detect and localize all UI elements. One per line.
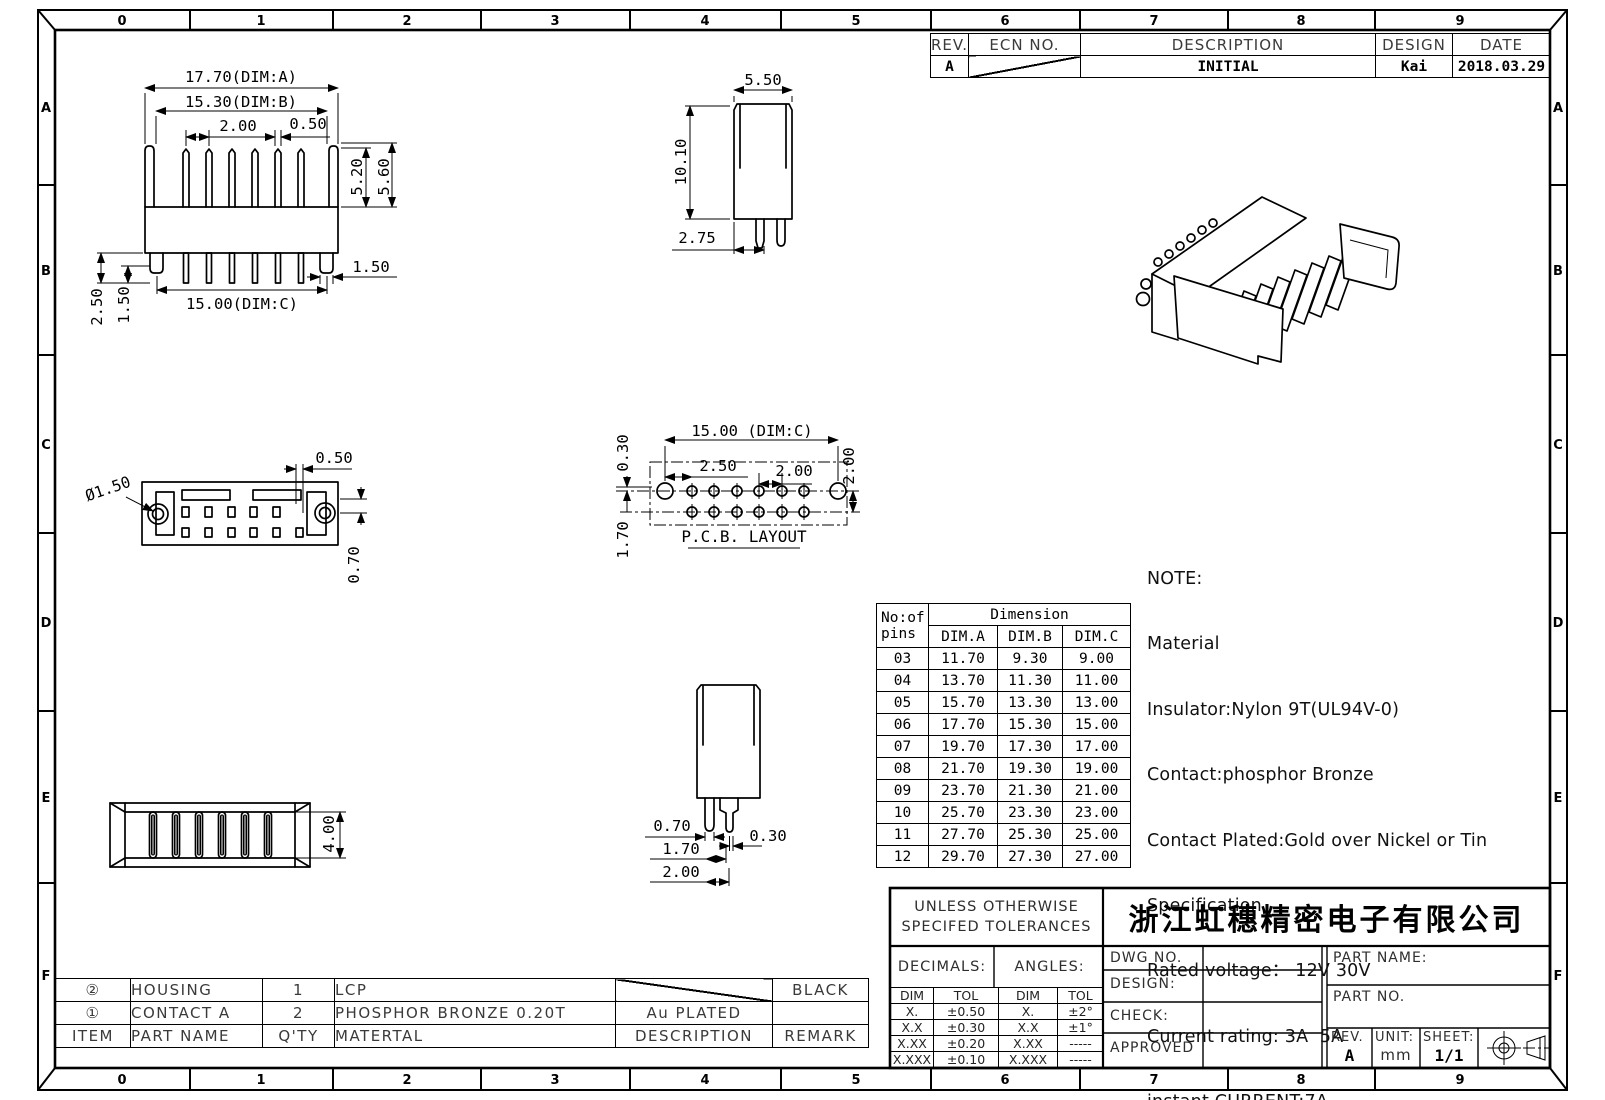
table-row: 0821.7019.3019.00	[877, 758, 1131, 780]
side-view-drawing: 5.50 10.10 2.75	[672, 71, 792, 254]
table-row: 0617.7015.3015.00	[877, 714, 1131, 736]
svg-text:2: 2	[402, 14, 411, 29]
svg-text:0: 0	[117, 14, 126, 29]
svg-text:6: 6	[1000, 1073, 1009, 1088]
svg-text:3: 3	[550, 1073, 559, 1088]
table-row: 1229.7027.3027.00	[877, 846, 1131, 868]
svg-text:4: 4	[700, 14, 709, 29]
description-col-header: DESCRIPTION	[1081, 34, 1376, 56]
part-item-number: ①	[56, 1002, 131, 1025]
side-view2-drawing: 0.70 1.70 2.00 0.30	[645, 685, 787, 886]
dim-table-cell: 17.70	[929, 714, 998, 736]
pcb-row-offset-label: 0.30	[614, 434, 632, 471]
dim-table-cell: 15.00	[1063, 714, 1131, 736]
dim-table-cell: 27.00	[1063, 846, 1131, 868]
note-line: Rated voltage： 12V 30V	[1147, 959, 1487, 984]
dim-table-cell: 23.30	[998, 802, 1063, 824]
dim-table-cell: 10	[877, 802, 929, 824]
tol-cell: -----	[1058, 1052, 1104, 1068]
design-col-header: DESIGN	[1376, 34, 1453, 56]
front-leg-width-label: 1.50	[352, 258, 389, 276]
top-view-drawing: 4.00	[110, 803, 346, 867]
svg-text:0: 0	[117, 1073, 126, 1088]
dim-table-cell: 25.70	[929, 802, 998, 824]
design-value: Kai	[1376, 56, 1453, 78]
part-remark	[773, 1002, 869, 1025]
notes-block: NOTE: Material Insulator:Nylon 9T(UL94V-…	[1147, 527, 1487, 1100]
revision-table: REV. ECN NO. DESCRIPTION DESIGN DATE A I…	[930, 33, 1551, 78]
dim-table-cell: 04	[877, 670, 929, 692]
dim-table-cell: 25.30	[998, 824, 1063, 846]
top-slot-height-label: 4.00	[320, 815, 338, 852]
part-name-label: PART NAME:	[1333, 950, 1428, 966]
note-line: Insulator:Nylon 9T(UL94V-0)	[1147, 698, 1487, 723]
drawing-sheet: 0 1 2 3 4 5 6 7 8 9 0 1 2 3 4 5 6 7 8 9 …	[0, 0, 1605, 1100]
front-pitch-label: 2.00	[219, 117, 256, 135]
isometric-view-drawing	[1137, 197, 1400, 364]
svg-text:C: C	[1553, 438, 1563, 453]
side2-tip-width-label: 0.30	[749, 827, 786, 845]
dim-table-cell: 13.70	[929, 670, 998, 692]
unit-label: UNIT:	[1375, 1030, 1414, 1045]
tol-cell: X.XXX	[999, 1052, 1058, 1068]
date-value: 2018.03.29	[1453, 56, 1551, 78]
svg-text:6: 6	[1000, 14, 1009, 29]
dim-table-cell: 27.30	[998, 846, 1063, 868]
dim-table-cell: 17.00	[1063, 736, 1131, 758]
dimension-table: No:of pins Dimension DIM.A DIM.B DIM.C 0…	[876, 603, 1131, 868]
tol-cell: ±1°	[1058, 1020, 1104, 1036]
decimals-label: DECIMALS:	[890, 946, 994, 987]
part-no-label: PART NO.	[1333, 989, 1405, 1005]
revision-header-row: REV. ECN NO. DESCRIPTION DESIGN DATE	[931, 34, 1551, 56]
dim-table-cell: 19.00	[1063, 758, 1131, 780]
approved-label: APPROVED	[1110, 1040, 1194, 1056]
part-name: HOUSING	[131, 979, 263, 1002]
tol-cell: -----	[1058, 1036, 1104, 1052]
svg-text:E: E	[42, 791, 51, 806]
dim-table-cell: 21.30	[998, 780, 1063, 802]
note-line: NOTE:	[1147, 567, 1487, 592]
side-width-label: 5.50	[744, 71, 781, 89]
sheet-label: SHEET:	[1423, 1030, 1474, 1045]
table-row: 1025.7023.3023.00	[877, 802, 1131, 824]
angles-label: ANGLES:	[996, 946, 1103, 987]
dim-table-cell: 07	[877, 736, 929, 758]
front-dim-b-label: 15.30(DIM:B)	[185, 93, 297, 111]
dim-table-cell: 08	[877, 758, 929, 780]
part-description	[616, 979, 773, 1002]
dim-table-cell: 09	[877, 780, 929, 802]
table-row: 0923.7021.3021.00	[877, 780, 1131, 802]
dim-table-cell: 03	[877, 648, 929, 670]
svg-text:C: C	[41, 438, 51, 453]
part-qty: 2	[263, 1002, 335, 1025]
svg-text:7: 7	[1149, 14, 1158, 29]
tolerance-row: X.XX ±0.20 X.XX -----	[891, 1036, 1104, 1052]
dim-table-cell: 13.00	[1063, 692, 1131, 714]
rev-col-header: REV.	[931, 34, 969, 56]
description-col-header: DESCRIPTION	[616, 1025, 773, 1048]
ecn-value	[969, 56, 1081, 78]
dim-table-cell: 21.00	[1063, 780, 1131, 802]
item-col-header: ITEM	[56, 1025, 131, 1048]
dim-table-cell: 05	[877, 692, 929, 714]
tol-cell: ±0.30	[934, 1020, 999, 1036]
rev-value: A	[1327, 1046, 1372, 1065]
dim-table-cell: 19.30	[998, 758, 1063, 780]
side-height-label: 10.10	[672, 139, 690, 186]
svg-text:E: E	[1554, 791, 1563, 806]
front-outer-height-label: 5.60	[375, 158, 393, 195]
svg-text:2: 2	[402, 1073, 411, 1088]
front-tail-length-label: 2.50	[88, 288, 106, 325]
bottom-hole-dia-label: Ø1.50	[83, 473, 133, 505]
front-tail-length2-label: 1.50	[115, 286, 133, 323]
tol-cell: X.XX	[999, 1036, 1058, 1052]
tol-cell: X.X	[891, 1020, 934, 1036]
design-label: DESIGN:	[1110, 976, 1176, 992]
table-row: 0413.7011.3011.00	[877, 670, 1131, 692]
svg-text:5: 5	[851, 1073, 860, 1088]
table-row: 0515.7013.3013.00	[877, 692, 1131, 714]
check-label: CHECK:	[1110, 1008, 1169, 1024]
ecn-col-header: ECN NO.	[969, 34, 1081, 56]
pcb-layout-drawing: 15.00 (DIM:C) 2.50 2.00 0.30 1.70 2.00 P…	[614, 422, 860, 559]
front-dim-a-label: 17.70(DIM:A)	[185, 68, 297, 86]
part-name: CONTACT A	[131, 1002, 263, 1025]
pcb-row-pitch-label: 2.00	[840, 447, 858, 484]
dim-table-cell: 19.70	[929, 736, 998, 758]
dim-a-col-header: DIM.A	[929, 626, 998, 648]
dim-table-cell: 11.30	[998, 670, 1063, 692]
svg-text:D: D	[1553, 616, 1564, 631]
unit-value: mm	[1372, 1046, 1420, 1064]
dim-col-header: DIM	[891, 988, 934, 1004]
note-line: Contact:phosphor Bronze	[1147, 763, 1487, 788]
dim-table-cell: 9.30	[998, 648, 1063, 670]
rev-label: REV.	[1331, 1030, 1364, 1045]
tolerance-header-row: DIM TOL DIM TOL	[891, 988, 1104, 1004]
projection-symbol-icon	[1487, 1031, 1549, 1065]
table-row: 0719.7017.3017.00	[877, 736, 1131, 758]
bottom-hole-offset-label: 0.70	[345, 546, 363, 583]
svg-text:B: B	[1553, 264, 1563, 279]
svg-text:D: D	[41, 616, 52, 631]
dim-table-cell: 21.70	[929, 758, 998, 780]
part-remark: BLACK	[773, 979, 869, 1002]
tol-cell: X.XXX	[891, 1052, 934, 1068]
tol-cell: ±0.50	[934, 1004, 999, 1020]
qty-col-header: Q'TY	[263, 1025, 335, 1048]
pins-col-header: No:of pins	[877, 604, 929, 648]
dim-table-cell: 23.70	[929, 780, 998, 802]
svg-text:F: F	[1554, 969, 1563, 984]
dim-table-cell: 15.70	[929, 692, 998, 714]
pcb-pin-pitch-label: 2.00	[775, 462, 812, 480]
table-row: 1127.7025.3025.00	[877, 824, 1131, 846]
remark-col-header: REMARK	[773, 1025, 869, 1048]
front-pin-width-label: 0.50	[289, 115, 326, 133]
svg-text:9: 9	[1455, 14, 1464, 29]
description-value: INITIAL	[1081, 56, 1376, 78]
svg-text:5: 5	[851, 14, 860, 29]
revision-row: A INITIAL Kai 2018.03.29	[931, 56, 1551, 78]
pcb-layout-title: P.C.B. LAYOUT	[681, 527, 807, 546]
dim-table-cell: 15.30	[998, 714, 1063, 736]
svg-text:A: A	[41, 101, 51, 116]
part-item-number: ②	[56, 979, 131, 1002]
svg-text:3: 3	[550, 14, 559, 29]
dim-table-cell: 12	[877, 846, 929, 868]
pcb-dim-c-label: 15.00 (DIM:C)	[691, 422, 812, 440]
tol-cell: X.XX	[891, 1036, 934, 1052]
bottom-view-drawing: Ø1.50 0.50 0.70	[83, 449, 367, 584]
parts-table: ② HOUSING 1 LCP BLACK ① CONTACT A 2 PHOS…	[55, 978, 869, 1048]
sheet-value: 1/1	[1420, 1046, 1478, 1065]
date-col-header: DATE	[1453, 34, 1551, 56]
svg-text:8: 8	[1296, 14, 1305, 29]
parts-row: ② HOUSING 1 LCP BLACK	[56, 979, 869, 1002]
dim-c-col-header: DIM.C	[1063, 626, 1131, 648]
part-material: PHOSPHOR BRONZE 0.20T	[335, 1002, 616, 1025]
svg-text:A: A	[1553, 101, 1563, 116]
dim-table-cell: 11.70	[929, 648, 998, 670]
dim-table-cell: 17.30	[998, 736, 1063, 758]
tol-col-header: TOL	[934, 988, 999, 1004]
material-col-header: MATERTAL	[335, 1025, 616, 1048]
note-line: Contact Plated:Gold over Nickel or Tin	[1147, 829, 1487, 854]
tolerance-row: X. ±0.50 X. ±2°	[891, 1004, 1104, 1020]
dim-table-cell: 11	[877, 824, 929, 846]
front-view-drawing: 17.70(DIM:A) 15.30(DIM:B) 2.00 0.50 5.20…	[88, 68, 397, 326]
company-name: 浙江虹穗精密电子有限公司	[1103, 888, 1550, 946]
part-name-col-header: PART NAME	[131, 1025, 263, 1048]
note-line: Material	[1147, 632, 1487, 657]
tolerance-table: DIM TOL DIM TOL X. ±0.50 X. ±2° X.X ±0.3…	[890, 987, 1104, 1068]
svg-text:1: 1	[256, 14, 265, 29]
part-description: Au PLATED	[616, 1002, 773, 1025]
dimension-group-header: Dimension	[929, 604, 1131, 626]
tol-cell: ±0.10	[934, 1052, 999, 1068]
tolerance-row: X.X ±0.30 X.X ±1°	[891, 1020, 1104, 1036]
dim-table-cell: 9.00	[1063, 648, 1131, 670]
svg-text:F: F	[42, 969, 51, 984]
svg-text:1: 1	[256, 1073, 265, 1088]
dim-table-cell: 29.70	[929, 846, 998, 868]
front-dim-c-label: 15.00(DIM:C)	[186, 295, 298, 313]
dim-table-cell: 06	[877, 714, 929, 736]
note-line: instant CURRENT:7A	[1147, 1090, 1487, 1100]
tolerance-row: X.XXX ±0.10 X.XXX -----	[891, 1052, 1104, 1068]
tol-col-header: TOL	[1058, 988, 1104, 1004]
rev-value: A	[931, 56, 969, 78]
part-material: LCP	[335, 979, 616, 1002]
tol-cell: X.X	[999, 1020, 1058, 1036]
dwg-no-label: DWG NO.	[1110, 950, 1182, 966]
parts-header-row: ITEM PART NAME Q'TY MATERTAL DESCRIPTION…	[56, 1025, 869, 1048]
dim-table-cell: 23.00	[1063, 802, 1131, 824]
tol-cell: X.	[999, 1004, 1058, 1020]
dim-table-cell: 11.00	[1063, 670, 1131, 692]
dim-table-cell: 27.70	[929, 824, 998, 846]
tol-cell: X.	[891, 1004, 934, 1020]
pcb-row-spacing-label: 1.70	[614, 521, 632, 558]
svg-text:4: 4	[700, 1073, 709, 1088]
side-pin-offset-label: 2.75	[678, 229, 715, 247]
side2-pin-width-label: 0.70	[653, 817, 690, 835]
dim-col-header: DIM	[999, 988, 1058, 1004]
bottom-slot-width-label: 0.50	[315, 449, 352, 467]
side2-tip-offset2-label: 2.00	[662, 863, 699, 881]
dim-table-cell: 13.30	[998, 692, 1063, 714]
part-qty: 1	[263, 979, 335, 1002]
dim-table-cell: 25.00	[1063, 824, 1131, 846]
table-row: 0311.709.309.00	[877, 648, 1131, 670]
tolerance-title: UNLESS OTHERWISE SPECIFED TOLERANCES	[890, 888, 1103, 946]
svg-text:B: B	[41, 264, 51, 279]
parts-row: ① CONTACT A 2 PHOSPHOR BRONZE 0.20T Au P…	[56, 1002, 869, 1025]
pcb-end-pitch-label: 2.50	[699, 457, 736, 475]
dim-b-col-header: DIM.B	[998, 626, 1063, 648]
tol-cell: ±0.20	[934, 1036, 999, 1052]
side2-tip-offset-label: 1.70	[662, 840, 699, 858]
tol-cell: ±2°	[1058, 1004, 1104, 1020]
front-inner-height-label: 5.20	[348, 158, 366, 195]
